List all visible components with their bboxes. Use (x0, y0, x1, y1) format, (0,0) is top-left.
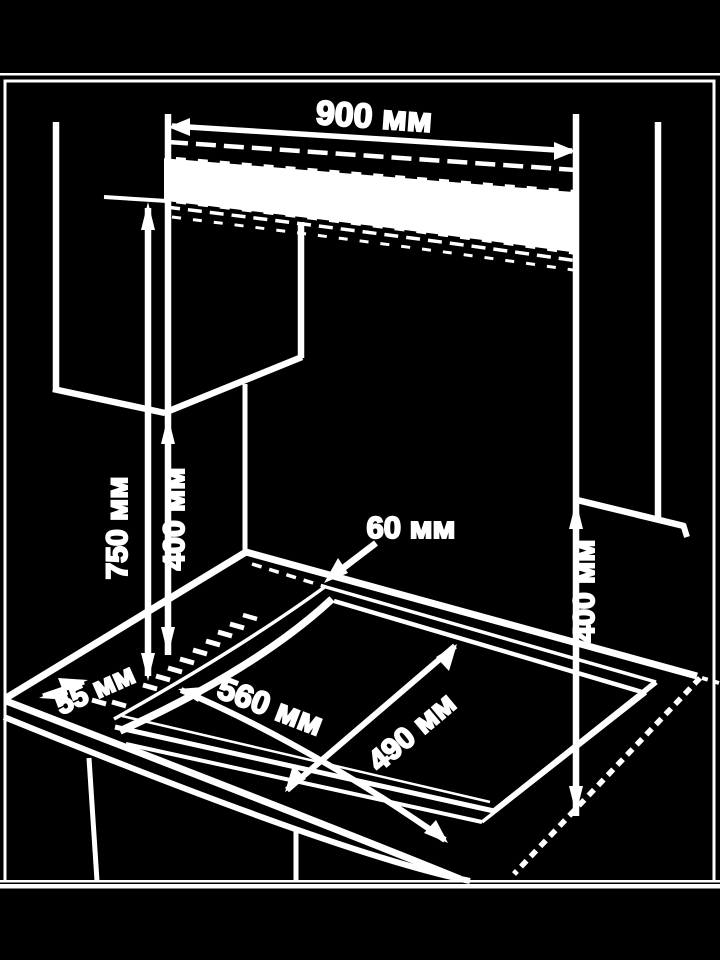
svg-text:400 мм: 400 мм (568, 540, 601, 643)
svg-text:750 мм: 750 мм (101, 477, 134, 580)
svg-text:60 мм: 60 мм (367, 510, 456, 545)
svg-text:900 мм: 900 мм (315, 94, 434, 140)
svg-text:400 мм: 400 мм (158, 468, 191, 571)
